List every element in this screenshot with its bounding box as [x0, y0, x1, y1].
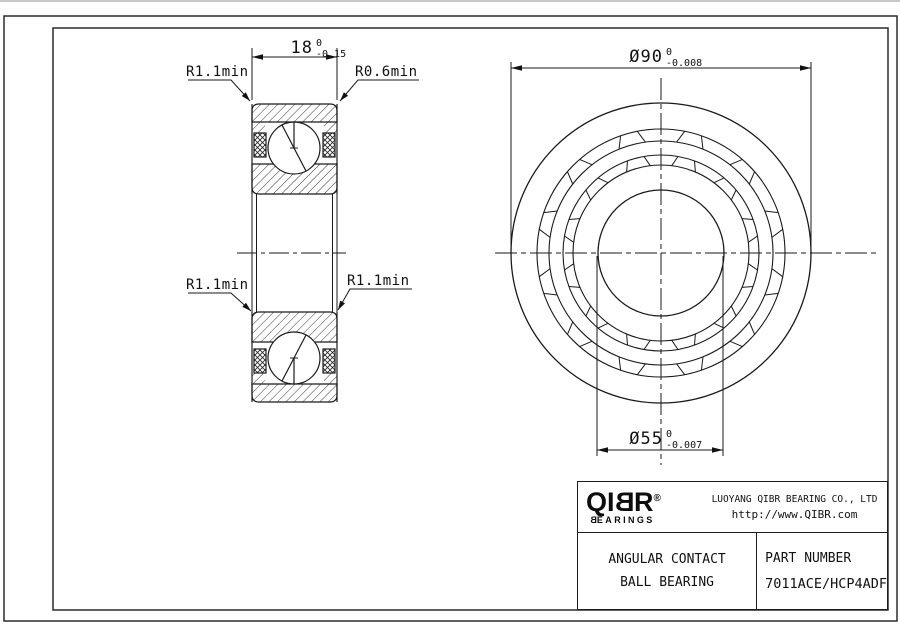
part-number-cell: PART NUMBER 7011ACE/HCP4ADF — [756, 533, 887, 609]
bore-tol-lower: -0.007 — [666, 440, 702, 451]
leader-bottom-left — [188, 293, 251, 311]
outer-ring-top — [252, 104, 337, 122]
radius-label-top-right: R0.6min — [355, 64, 418, 80]
width-tol-upper: 0 — [316, 38, 322, 49]
od-tol-lower: -0.008 — [666, 58, 702, 69]
title-block: QIBR® BEARINGS LUOYANG QIBR BEARING CO.,… — [577, 481, 888, 610]
logo-wordmark: QIBR® — [586, 486, 708, 515]
registered-mark: ® — [654, 493, 661, 504]
width-value: 18 — [291, 38, 313, 58]
leader-bottom-right — [338, 289, 412, 310]
section-view — [237, 104, 346, 402]
bore-value: Ø55 — [629, 429, 663, 449]
logo-subtitle: BEARINGS — [586, 515, 708, 525]
od-value: Ø90 — [629, 47, 663, 67]
front-view — [495, 78, 878, 465]
company-website[interactable]: http://www.QIBR.com — [732, 508, 858, 521]
od-tol-upper: 0 — [666, 47, 672, 58]
cage-top-right — [323, 133, 335, 157]
radius-label-top-left: R1.1min — [186, 64, 249, 80]
company-info: LUOYANG QIBR BEARING CO., LTD http://www… — [708, 482, 887, 532]
outer-ring-bottom — [252, 384, 337, 402]
product-line1: ANGULAR CONTACT — [608, 552, 725, 567]
cage-top-left — [254, 133, 266, 157]
bore-tol-upper: 0 — [666, 429, 672, 440]
company-name: LUOYANG QIBR BEARING CO., LTD — [712, 494, 878, 505]
radius-label-bottom-left: R1.1min — [186, 277, 249, 293]
cage-bottom-right — [323, 349, 335, 373]
company-logo: QIBR® BEARINGS — [578, 482, 708, 532]
radius-label-bottom-right: R1.1min — [347, 273, 410, 289]
product-line2: BALL BEARING — [620, 575, 714, 590]
leader-top-left — [188, 80, 250, 101]
product-description: ANGULAR CONTACT BALL BEARING — [578, 533, 756, 609]
leader-top-right — [340, 80, 419, 101]
title-block-header-row: QIBR® BEARINGS LUOYANG QIBR BEARING CO.,… — [578, 482, 887, 533]
part-number-value: 7011ACE/HCP4ADF — [765, 576, 887, 592]
title-block-body-row: ANGULAR CONTACT BALL BEARING PART NUMBER… — [578, 533, 887, 609]
drawing-sheet: 18 0 -0.15 R1.1min R0.6min R1.1min R1.1m… — [0, 0, 900, 636]
part-number-label: PART NUMBER — [765, 551, 887, 566]
cage-bottom-left — [254, 349, 266, 373]
width-tol-lower: -0.15 — [316, 49, 346, 60]
